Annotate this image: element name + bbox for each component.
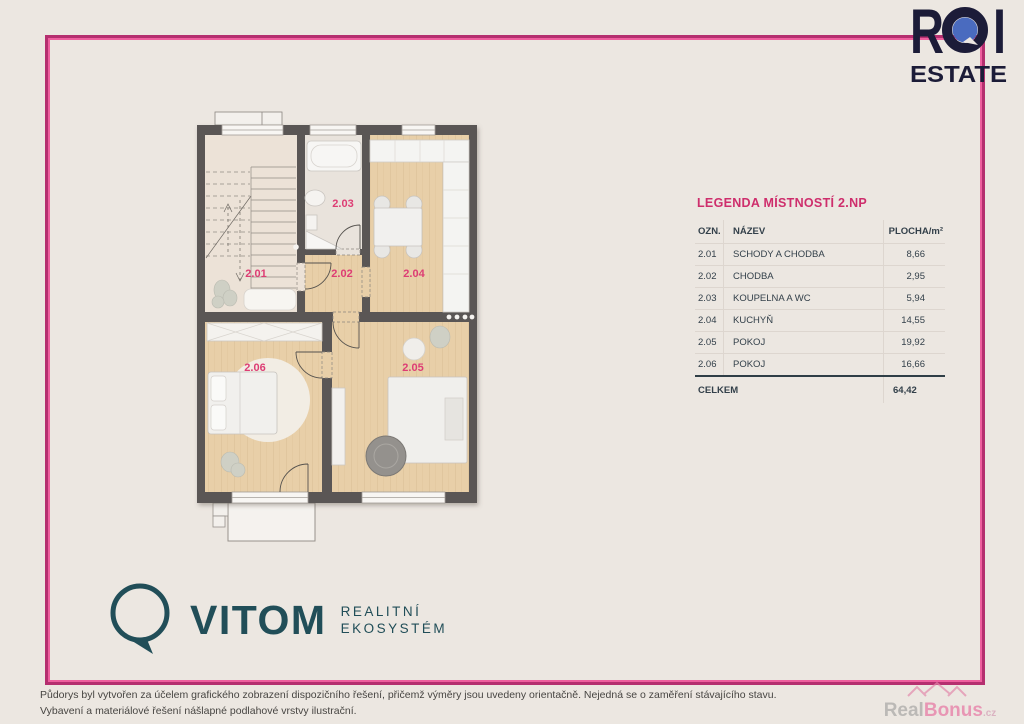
- total-value: 64,42: [883, 377, 945, 403]
- chimney: [215, 112, 282, 125]
- row-name: CHODBA: [723, 266, 883, 287]
- legend-total-row: CELKEM 64,42: [695, 375, 945, 403]
- row-code: 2.04: [695, 310, 723, 331]
- room-label-2-02: 2.02: [331, 268, 352, 280]
- room-label-2-04: 2.04: [403, 268, 425, 280]
- row-name: SCHODY A CHODBA: [723, 244, 883, 265]
- roi-letter-r: R: [910, 6, 944, 67]
- legend-row: 2.02 CHODBA 2,95: [695, 266, 945, 288]
- realbonus-watermark: RealBonus.cz: [882, 681, 998, 722]
- row-name: POKOJ: [723, 332, 883, 353]
- row-name: KUCHYŇ: [723, 310, 883, 331]
- legend-panel: LEGENDA MÍSTNOSTÍ 2.NP OZN. NÁZEV PLOCHA…: [695, 196, 945, 403]
- total-label: CELKEM: [695, 377, 883, 403]
- realbonus-text-bonus: Bonus: [924, 700, 983, 721]
- vitom-logo: VITOM REALITNÍ EKOSYSTÉM: [106, 580, 447, 660]
- room-label-2-01: 2.01: [245, 268, 266, 280]
- room-2-02-floor: [305, 255, 362, 312]
- realbonus-text: RealBonus.cz: [882, 703, 998, 722]
- room-label-2-05: 2.05: [402, 362, 423, 374]
- legend-row: 2.05 POKOJ 19,92: [695, 332, 945, 354]
- legend-table: OZN. NÁZEV PLOCHA/m² 2.01 SCHODY A CHODB…: [695, 220, 945, 403]
- legend-row: 2.06 POKOJ 16,66: [695, 354, 945, 375]
- vitom-wordmark: VITOM: [190, 597, 327, 644]
- realbonus-text-cz: .cz: [983, 708, 996, 719]
- vitom-tagline-line1: REALITNÍ: [341, 603, 448, 620]
- row-code: 2.01: [695, 244, 723, 265]
- realbonus-houses-icon: [904, 681, 976, 698]
- roi-estate-logo-svg: R I ESTATE: [910, 6, 1010, 90]
- room-label-2-03: 2.03: [332, 198, 353, 210]
- row-area: 16,66: [883, 354, 945, 375]
- legend-col-ozn: OZN.: [695, 220, 723, 243]
- vitom-bubble-icon: [106, 580, 180, 660]
- disclaimer-line-2: Vybavení a materiálové řešení nášlapné p…: [40, 703, 777, 719]
- roi-estate-text: ESTATE: [910, 61, 1007, 87]
- row-area: 2,95: [883, 266, 945, 287]
- roi-o-bubble-icon: [947, 12, 983, 48]
- legend-col-plocha: PLOCHA/m²: [883, 220, 945, 243]
- row-code: 2.03: [695, 288, 723, 309]
- footer-disclaimer: Půdorys byl vytvořen za účelem grafickéh…: [40, 687, 777, 719]
- row-code: 2.05: [695, 332, 723, 353]
- legend-row: 2.01 SCHODY A CHODBA 8,66: [695, 244, 945, 266]
- room-label-2-06: 2.06: [244, 362, 265, 374]
- roi-estate-logo: R I ESTATE: [910, 6, 1010, 95]
- floorplan-drawing: 2.01 2.02 2.03 2.04 2.05 2.06: [185, 100, 500, 555]
- vitom-tagline-line2: EKOSYSTÉM: [341, 620, 448, 637]
- doormat: [244, 289, 296, 310]
- row-name: POKOJ: [723, 354, 883, 375]
- row-area: 8,66: [883, 244, 945, 265]
- row-code: 2.02: [695, 266, 723, 287]
- legend-title: LEGENDA MÍSTNOSTÍ 2.NP: [697, 196, 945, 210]
- legend-header-row: OZN. NÁZEV PLOCHA/m²: [695, 220, 945, 244]
- row-area: 19,92: [883, 332, 945, 353]
- row-code: 2.06: [695, 354, 723, 375]
- vitom-tagline: REALITNÍ EKOSYSTÉM: [341, 603, 448, 637]
- roi-letter-i: I: [993, 6, 1006, 67]
- realbonus-text-real: Real: [884, 700, 924, 721]
- row-area: 5,94: [883, 288, 945, 309]
- row-name: KOUPELNA A WC: [723, 288, 883, 309]
- legend-col-nazev: NÁZEV: [723, 220, 883, 243]
- row-area: 14,55: [883, 310, 945, 331]
- balcony: [213, 503, 315, 541]
- disclaimer-line-1: Půdorys byl vytvořen za účelem grafickéh…: [40, 687, 777, 703]
- legend-row: 2.03 KOUPELNA A WC 5,94: [695, 288, 945, 310]
- legend-row: 2.04 KUCHYŇ 14,55: [695, 310, 945, 332]
